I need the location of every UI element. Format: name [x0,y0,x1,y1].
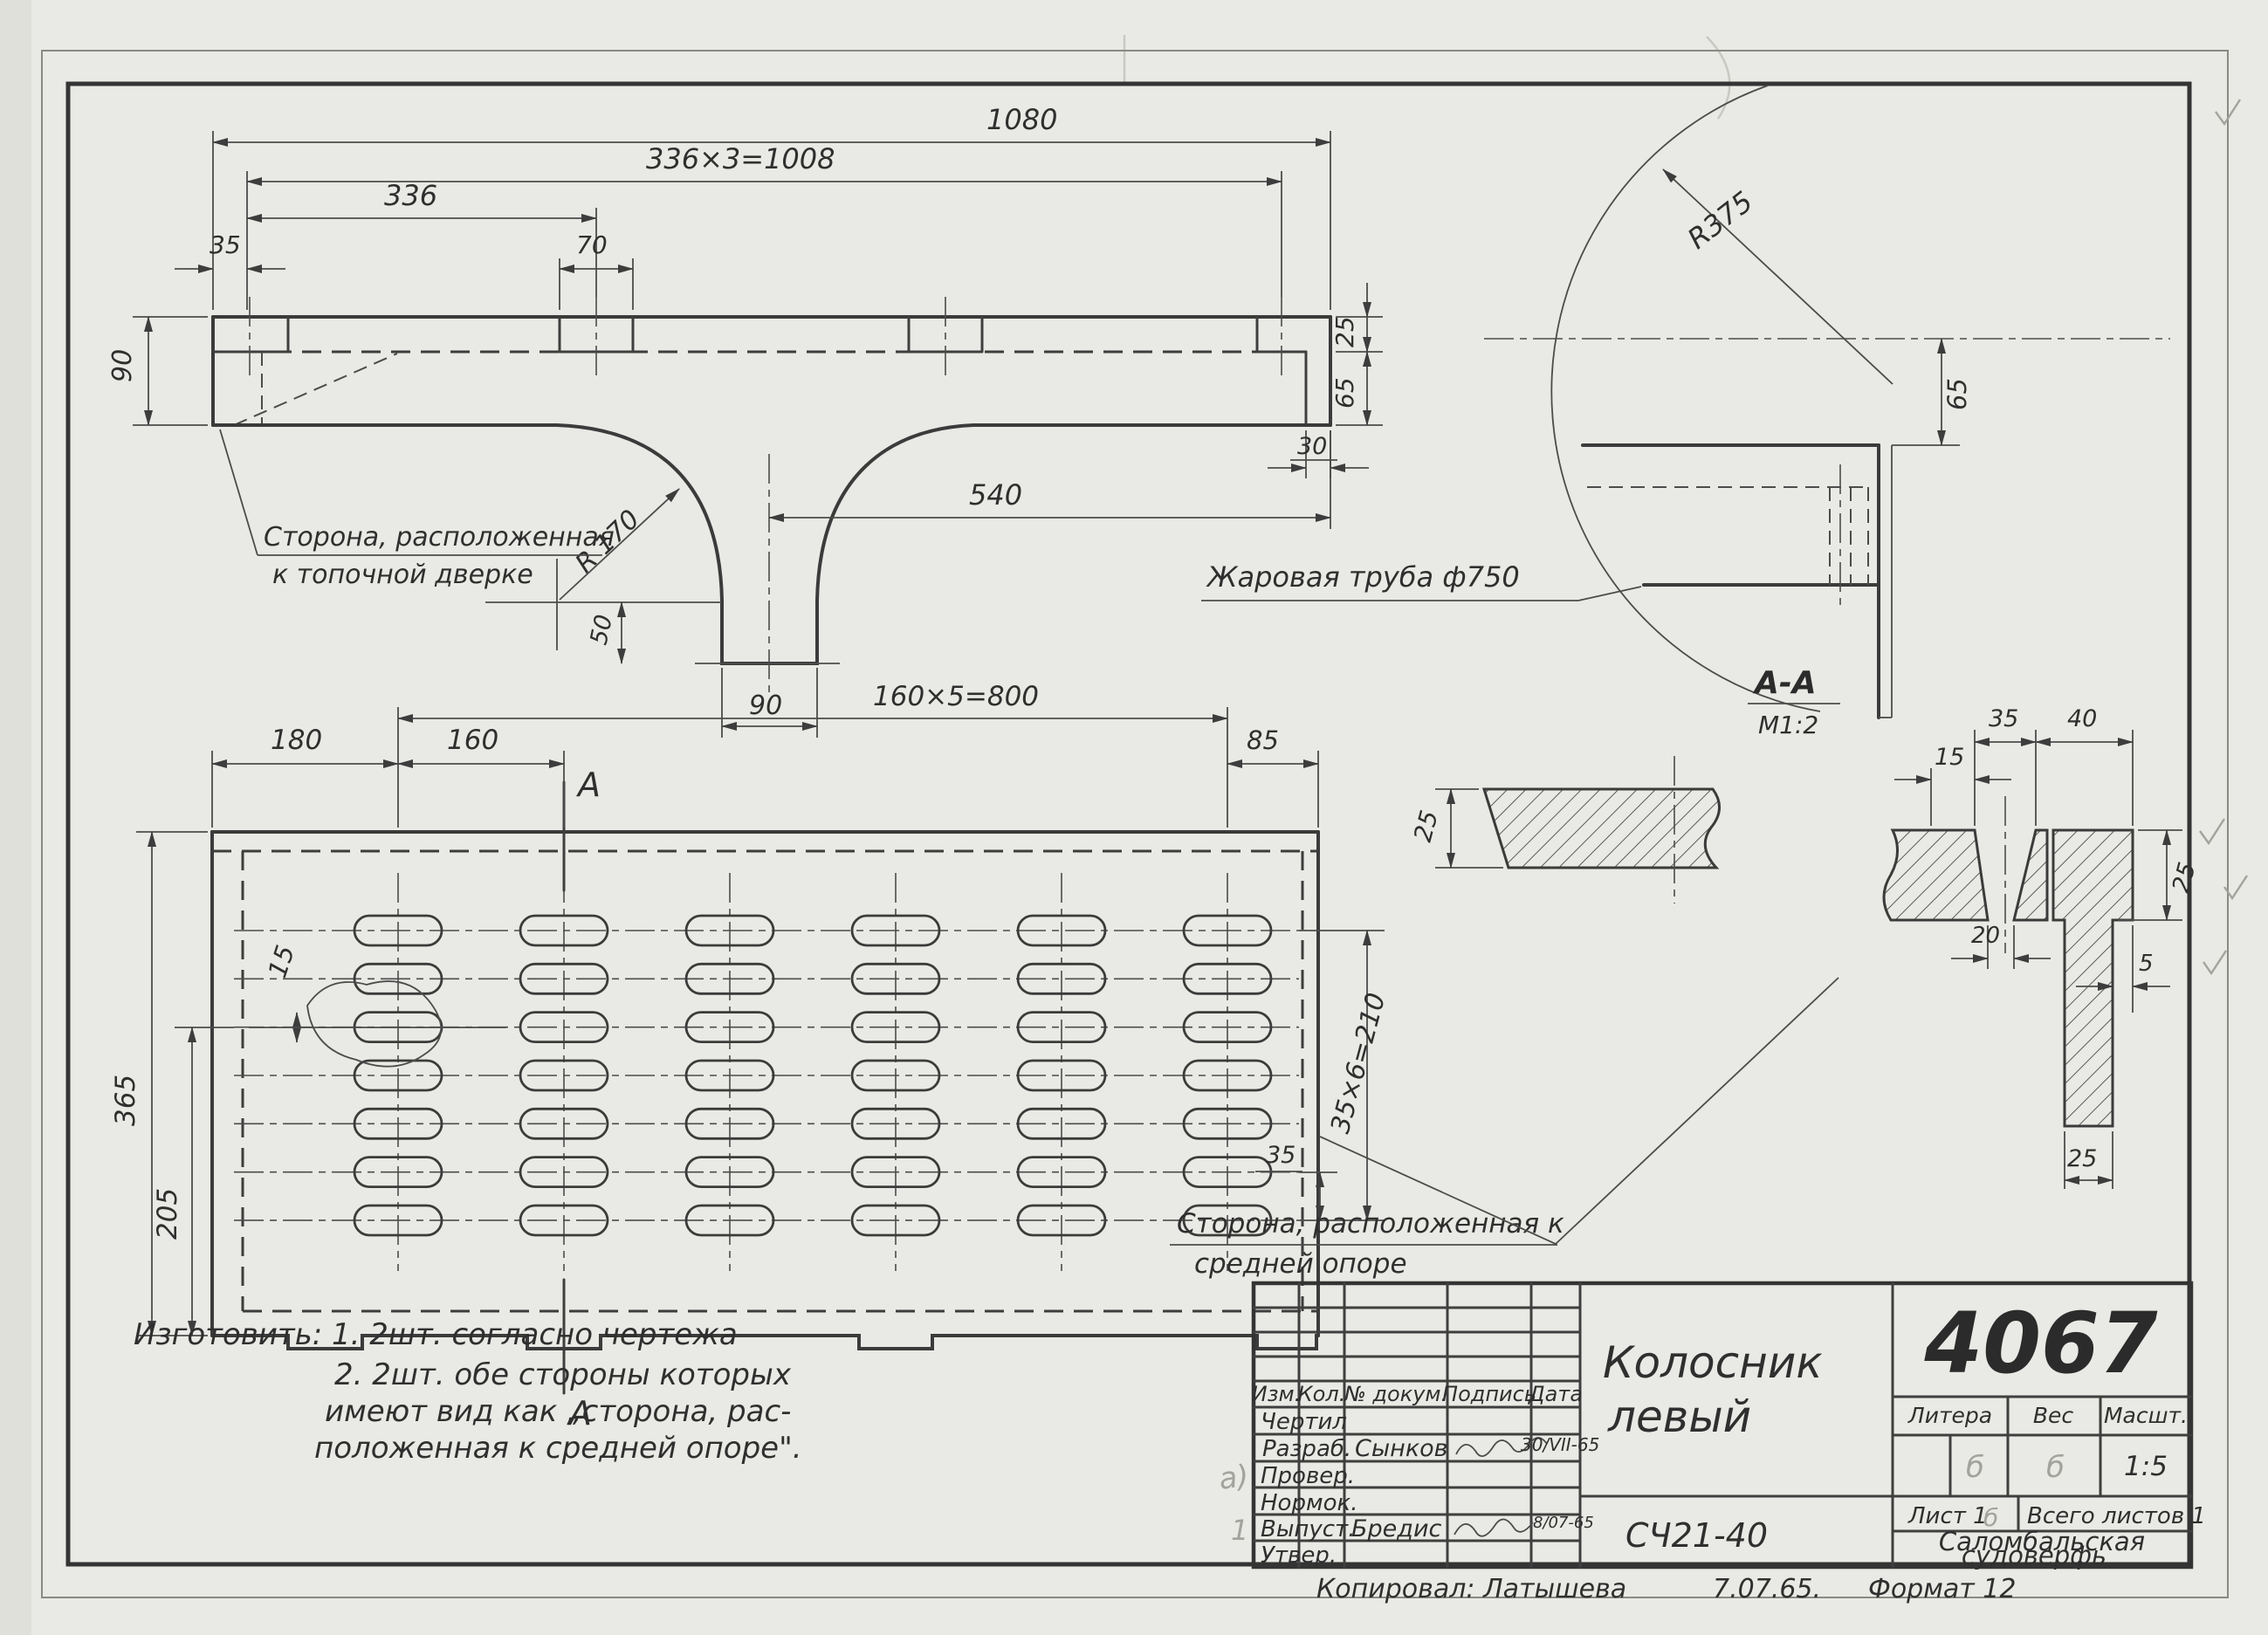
col-podpis: Подпись [1442,1382,1536,1406]
scale-label: Масшт. [2104,1403,2188,1428]
dim-65-detail: 65 [1942,378,1972,410]
note-line-2: 2. 2шт. обе стороны которых [334,1357,792,1392]
pencil-mark-a: а) [1217,1459,1251,1497]
row-razrab: Разраб. [1262,1436,1351,1462]
pencil-revision-1: 1 [1231,1514,1248,1547]
dim-20-section: 20 [1971,923,2000,949]
material-grade: СЧ21-40 [1625,1516,1768,1555]
note-line-1: Изготовить: 1. 2шт. согласно чертежа [134,1317,738,1352]
dim-90-leg: 90 [749,690,782,721]
dim-40-section: 40 [2067,705,2097,732]
label-support-side-2: средней опоре [1194,1248,1407,1280]
part-title-1: Колосник [1603,1337,1823,1388]
weight-label: Вес [2033,1403,2074,1428]
drawing-number: 4067 [1923,1295,2157,1392]
bar-section-trapezoid [1484,789,1720,868]
dim-205: 205 [152,1188,183,1240]
scale-value: 1:5 [2124,1451,2168,1482]
dim-90-left: 90 [107,349,138,382]
dim-160: 160 [447,725,498,756]
dim-30: 30 [1297,433,1327,460]
label-door-side-2: к топочной дверке [272,560,533,590]
col-izm: Изм. [1252,1382,1301,1406]
dim-35-section: 35 [1989,705,2018,732]
dim-25: 25 [1330,316,1359,347]
label-door-side-1: Сторона, расположенная [264,522,615,553]
dim-1080: 1080 [986,103,1057,136]
note-line-4: положенная к средней опоре". [314,1431,802,1466]
dim-85: 85 [1247,725,1279,755]
weight-value-pencil: б [2046,1450,2065,1485]
dim-65: 65 [1330,377,1359,409]
section-mark-top: А [575,766,601,804]
section-scale: М1:2 [1758,711,1818,739]
dim-540: 540 [969,478,1022,512]
note-line-3: имеют вид как „сторона, рас- [325,1394,791,1429]
col-data: Дата [1528,1382,1583,1406]
copied-by: Копировал: Латышева [1316,1574,1626,1604]
dim-180: 180 [271,725,322,756]
row-utver: Утвер. [1261,1542,1337,1569]
row-vypust: Выпуст. [1261,1516,1355,1542]
dim-25-web: 25 [2067,1145,2097,1172]
litera-label: Литера [1907,1403,1992,1428]
row-prover: Провер. [1261,1463,1355,1489]
dim-35-plan: 35 [1266,1142,1296,1169]
dim-5-section: 5 [2139,951,2154,977]
org-line-2: судоверфь [1962,1541,2106,1570]
label-support-side-1: Сторона, расположенная к [1177,1208,1564,1240]
dim-365: 365 [110,1075,141,1126]
dim-800: 160×5=800 [873,681,1039,712]
drawing-canvas: R 170 1080 336×3=1008 336 35 70 90 25 65 [0,0,2268,1635]
issuer-date: 8/07-65 [1533,1514,1594,1532]
paper-edge-shadow [0,0,31,1635]
developer-date: 30/VII-65 [1521,1434,1599,1455]
col-kol: Кол. [1298,1382,1346,1406]
aa-left-part [1884,830,1988,920]
issuer-name: Бредис [1351,1515,1441,1542]
sheets-total: Всего листов 1 [2027,1503,2206,1529]
dim-70: 70 [576,230,608,259]
dim-1008: 336×3=1008 [646,142,835,175]
dim-15-section: 15 [1935,744,1964,771]
format-note: Формат 12 [1868,1574,2016,1604]
section-label: А-А [1752,665,1817,701]
scanned-blueprint-sheet: R 170 1080 336×3=1008 336 35 70 90 25 65 [0,0,2268,1635]
copy-date: 7.07.65. [1713,1574,1821,1604]
row-chertil: Чертил [1261,1409,1347,1435]
dim-35: 35 [210,230,241,259]
row-normok: Нормок. [1261,1490,1357,1516]
sheet-info: Лист 1 [1907,1503,1988,1529]
developer-name: Сынков [1355,1435,1448,1462]
litera-value-pencil: б [1966,1450,1984,1485]
dim-336: 336 [384,179,437,212]
flue-label: Жаровая труба ф750 [1206,560,1520,594]
col-dokum: № докум. [1343,1382,1447,1406]
part-title-2: левый [1607,1391,1751,1442]
